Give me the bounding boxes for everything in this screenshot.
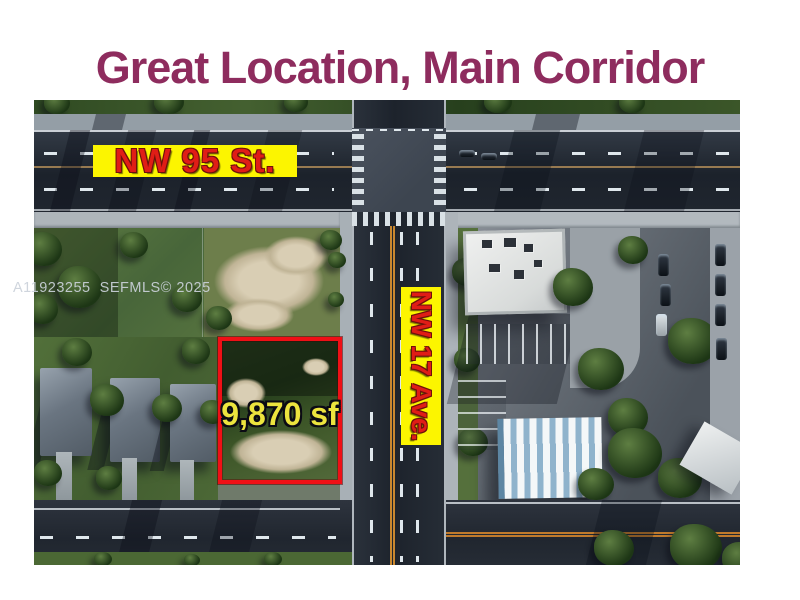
tree (578, 348, 624, 390)
rooftop-ac-unit (504, 238, 516, 247)
tree (553, 268, 593, 306)
bush (264, 552, 282, 565)
tree (152, 394, 182, 422)
lot-size-label: 9,870 sf (210, 396, 350, 433)
sidewalk (446, 212, 740, 228)
parked-car (656, 314, 667, 336)
house-roof (40, 368, 92, 456)
lane-dashes (40, 536, 336, 539)
street-label-nw95: NW 95 St. (93, 145, 297, 177)
tree (182, 338, 210, 364)
bush (94, 552, 112, 565)
tree (670, 524, 722, 565)
aerial-photo: 9,870 sf NW 95 St. NW 17 Ave. (34, 100, 740, 565)
tree (90, 384, 124, 416)
intersection (352, 128, 446, 212)
tree (578, 468, 614, 500)
rooftop-ac-unit (524, 244, 533, 252)
street-label-nw17: NW 17 Ave. (401, 287, 441, 445)
road-edge-line (34, 508, 340, 510)
shadow-streak (92, 114, 126, 130)
car-on-road (459, 150, 475, 157)
rooftop-ac-unit (534, 260, 542, 267)
bush (184, 554, 200, 565)
sand-patch (230, 430, 332, 474)
crosswalk-west (352, 134, 364, 206)
tree (96, 466, 122, 490)
center-line-double (393, 226, 395, 565)
page-title: Great Location, Main Corridor (0, 42, 800, 94)
sand-patch (224, 298, 294, 332)
tree (320, 230, 342, 250)
sand-patch (264, 236, 328, 276)
sidewalk (34, 212, 340, 228)
bush (328, 252, 346, 268)
parked-car (658, 254, 669, 276)
crosswalk-south (352, 212, 446, 226)
shadow-streak (532, 114, 580, 130)
crosswalk-east (434, 134, 446, 206)
parked-car (716, 338, 727, 360)
tree (618, 236, 648, 264)
driveway (122, 458, 137, 502)
bush (328, 292, 344, 307)
tree (608, 428, 662, 478)
tree (120, 232, 148, 258)
center-line-double (390, 226, 392, 565)
driveway (180, 460, 194, 502)
tree (206, 306, 232, 330)
parked-car (715, 304, 726, 326)
rooftop-ac-unit (489, 264, 500, 272)
road-edge-line (446, 502, 740, 504)
lane-dashes (370, 232, 373, 562)
car-on-road (481, 153, 497, 160)
rooftop-ac-unit (514, 270, 524, 279)
parking-stalls (466, 324, 570, 364)
parked-car (715, 274, 726, 296)
tree (62, 338, 92, 366)
stop-line-dashed (352, 129, 446, 131)
mls-watermark: A11923255 SEFMLS© 2025 (13, 280, 211, 296)
rooftop-ac-unit (482, 240, 492, 248)
parked-car (660, 284, 671, 306)
parked-car (715, 244, 726, 266)
tree (594, 530, 634, 565)
tree (34, 460, 62, 486)
sand-patch (302, 358, 330, 376)
